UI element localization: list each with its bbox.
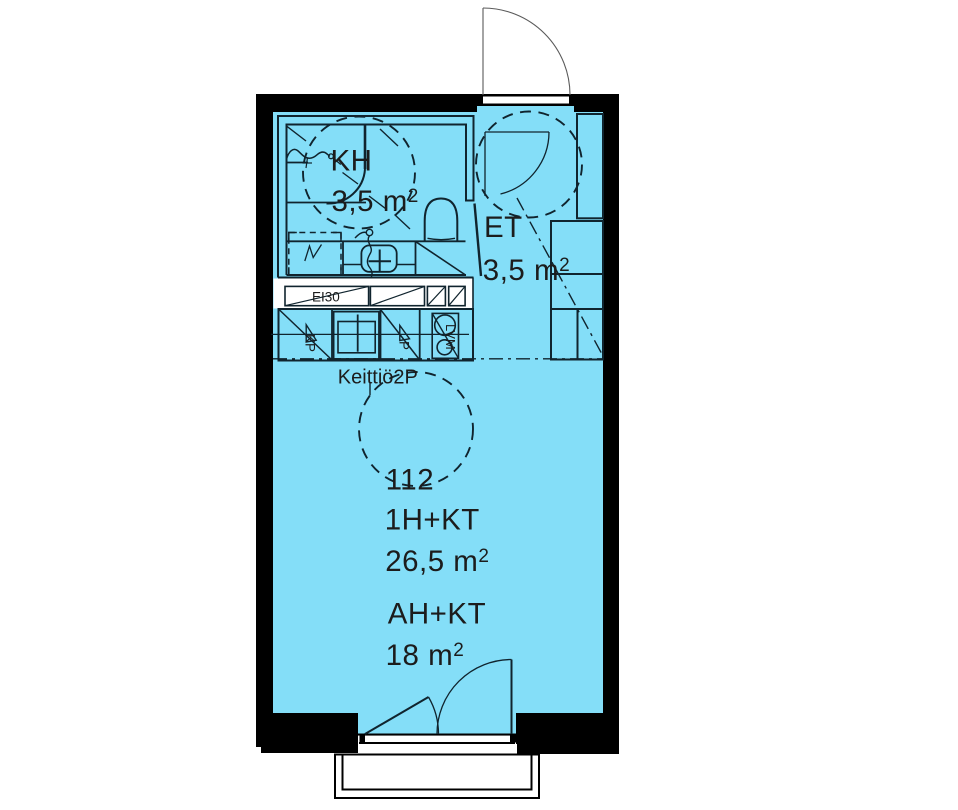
svg-text:112: 112: [386, 464, 435, 497]
svg-text:AH+KT: AH+KT: [388, 598, 486, 631]
svg-text:ET: ET: [484, 211, 523, 244]
svg-text:26,5 m2: 26,5 m2: [385, 545, 489, 578]
svg-text:KH: KH: [331, 144, 373, 177]
svg-text:EI30: EI30: [312, 290, 340, 305]
svg-text:3,5 m2: 3,5 m2: [483, 254, 570, 287]
svg-text:LVM: LVM: [443, 324, 458, 350]
svg-text:P: P: [397, 341, 412, 350]
svg-text:Keittiö2P: Keittiö2P: [338, 367, 418, 389]
svg-text:18 m2: 18 m2: [386, 639, 465, 672]
svg-text:3,5 m2: 3,5 m2: [332, 185, 419, 218]
svg-text:1H+KT: 1H+KT: [385, 504, 480, 537]
svg-text:KP: KP: [303, 334, 318, 352]
